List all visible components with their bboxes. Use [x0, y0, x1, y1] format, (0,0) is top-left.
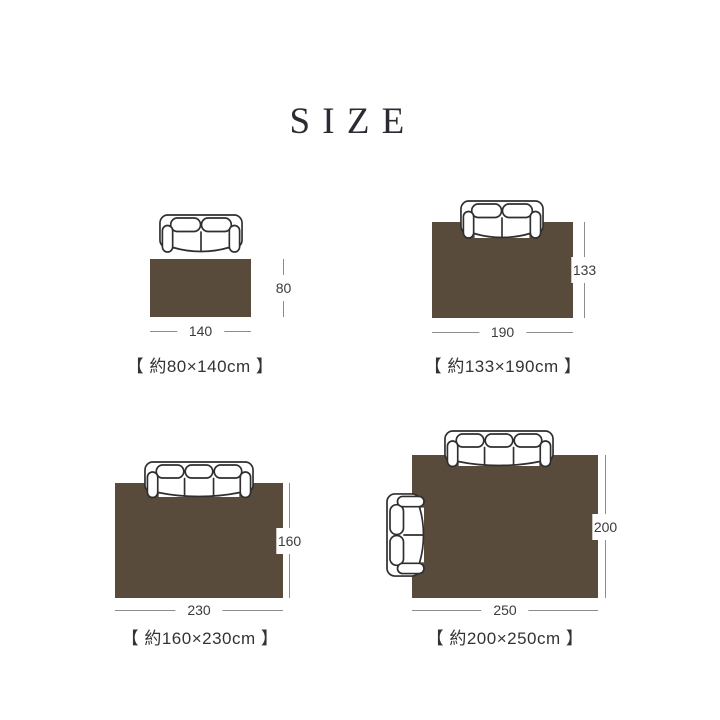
depth-dimension-label: 200: [592, 514, 619, 540]
size-variant-200x250: 200 250 【 約200×250cm 】: [0, 0, 720, 720]
width-dimension-label: 250: [481, 602, 528, 618]
two-seat-sofa-rotated-icon: [385, 492, 427, 578]
depth-dimension-line: 200: [605, 455, 606, 598]
rug-200x250: [412, 455, 598, 598]
size-guide-image: SIZE 80 140 【 約80×140cm 】 133 190 【 約133…: [0, 0, 720, 720]
size-caption: 【 約200×250cm 】: [355, 624, 655, 649]
width-dimension-line: 250: [412, 602, 598, 618]
three-seat-sofa-icon: [443, 429, 555, 469]
